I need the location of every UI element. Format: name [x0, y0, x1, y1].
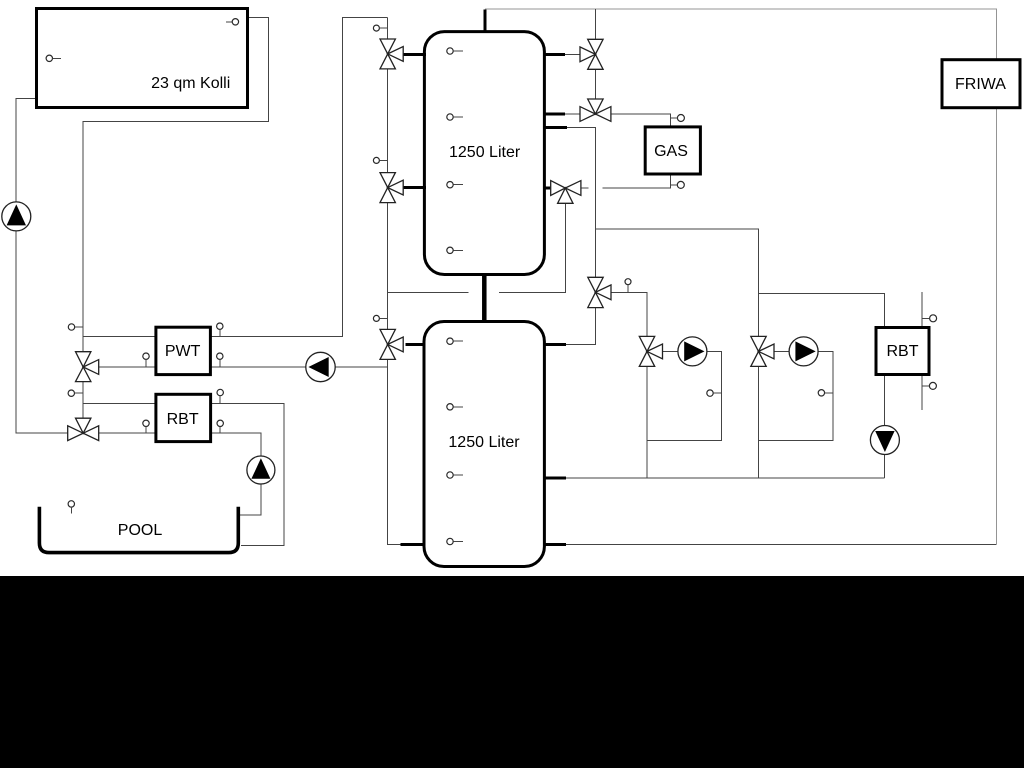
svg-text:RBT: RBT — [167, 411, 199, 428]
svg-text:RBT: RBT — [887, 343, 919, 360]
svg-text:POOL: POOL — [118, 522, 163, 539]
svg-text:GAS: GAS — [654, 143, 688, 160]
svg-text:1250 Liter: 1250 Liter — [448, 434, 520, 451]
svg-text:23 qm Kolli: 23 qm Kolli — [151, 75, 230, 92]
svg-text:FRIWA: FRIWA — [955, 76, 1006, 93]
svg-text:1250 Liter: 1250 Liter — [449, 144, 521, 161]
svg-text:PWT: PWT — [165, 343, 201, 360]
